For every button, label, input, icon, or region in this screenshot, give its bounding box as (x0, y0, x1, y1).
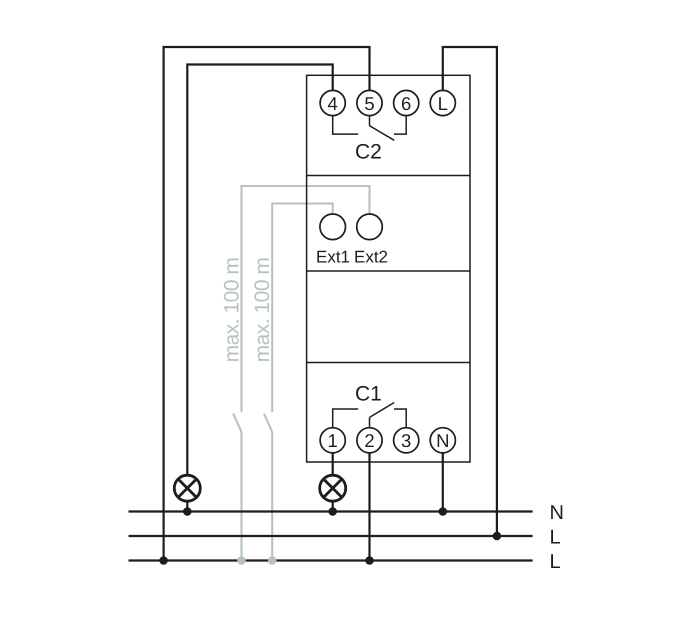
svg-text:L: L (438, 93, 448, 114)
svg-text:L: L (550, 551, 561, 573)
svg-text:4: 4 (328, 93, 338, 114)
svg-text:L: L (550, 526, 561, 548)
svg-text:Ext1: Ext1 (316, 247, 350, 266)
svg-text:N: N (436, 430, 449, 451)
svg-text:C1: C1 (355, 383, 382, 406)
svg-text:5: 5 (364, 93, 374, 114)
svg-text:2: 2 (364, 430, 374, 451)
svg-text:3: 3 (401, 430, 411, 451)
svg-text:max. 100 m: max. 100 m (221, 258, 244, 363)
svg-text:6: 6 (401, 93, 411, 114)
svg-text:N: N (550, 502, 564, 524)
svg-text:max. 100 m: max. 100 m (251, 258, 274, 363)
svg-text:1: 1 (328, 430, 338, 451)
svg-text:C2: C2 (355, 141, 382, 164)
svg-text:Ext2: Ext2 (354, 247, 388, 266)
